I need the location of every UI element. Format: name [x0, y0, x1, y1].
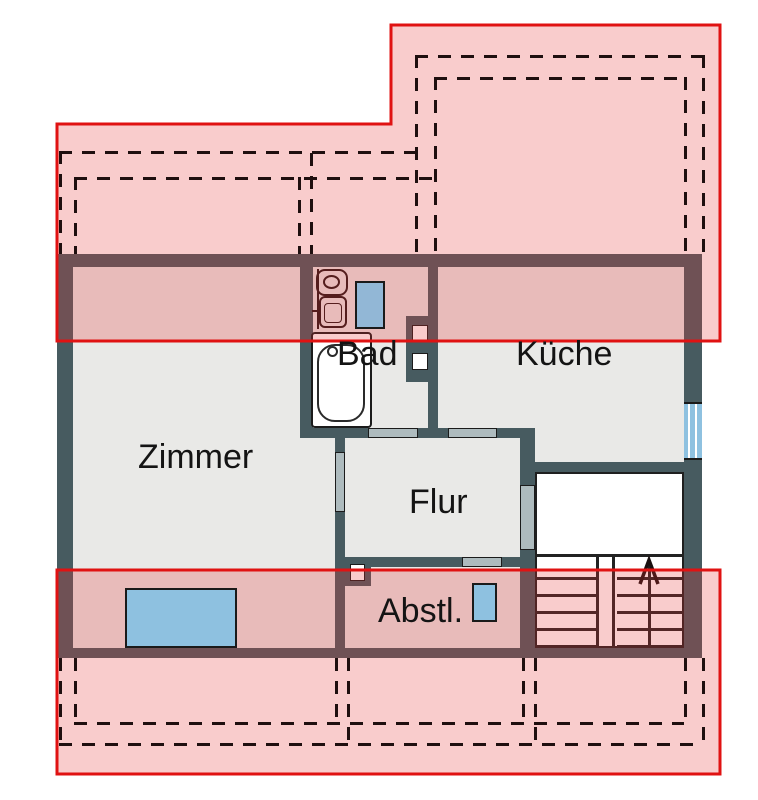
roof-dash-line	[335, 658, 338, 722]
roof-dash-line	[702, 658, 705, 743]
stairs-top-edge	[535, 554, 684, 557]
wall-stairwell-top	[535, 462, 684, 472]
roof-dash-line	[684, 77, 687, 254]
toilet-bowl	[323, 275, 340, 289]
right-wall-window	[684, 402, 702, 460]
wall-exterior-top	[57, 254, 702, 267]
roof-dash-line	[702, 55, 705, 254]
door-entry-stairwell	[520, 485, 535, 550]
roof-dash-line	[684, 658, 687, 722]
room-label-abstl: Abstl.	[378, 593, 463, 630]
wall-exterior-left	[57, 254, 73, 658]
sink-basin	[324, 303, 342, 323]
door-zimmer	[335, 452, 345, 512]
roof-dash-line	[434, 77, 437, 254]
floor-plan: Zimmer Bad Küche Flur Abstl.	[0, 0, 758, 800]
roof-dash-line	[522, 658, 525, 722]
roof-dash-line	[298, 177, 301, 254]
shaft-bad-kueche-opening-2	[412, 353, 428, 370]
roof-dash-line	[59, 151, 62, 254]
wall-exterior-bottom	[57, 648, 702, 658]
roof-dash-line	[74, 177, 434, 180]
roof-dash-line	[415, 55, 702, 58]
roof-dash-line	[59, 658, 62, 743]
roof-dash-line	[310, 153, 313, 254]
zimmer-knee-window	[125, 588, 237, 648]
roof-dash-line	[347, 658, 350, 743]
sink-tap	[312, 310, 321, 312]
roof-dash-line	[59, 743, 702, 746]
shaft-abstl-opening	[350, 564, 365, 581]
room-label-bad: Bad	[337, 336, 398, 373]
room-label-flur: Flur	[409, 484, 468, 521]
stairs-left-flight	[535, 577, 596, 648]
stairs-mid-strip-left-edge	[596, 557, 599, 648]
roof-dash-line	[74, 658, 77, 722]
roof-dash-line	[534, 658, 537, 743]
stairs-direction-line	[648, 562, 651, 648]
door-kueche	[448, 428, 497, 438]
roof-dash-line	[59, 151, 415, 154]
abstl-blue-panel	[472, 583, 497, 622]
door-abstl	[462, 557, 502, 567]
roof-dash-line	[415, 55, 418, 254]
room-label-zimmer: Zimmer	[138, 439, 253, 476]
stairs-mid-strip-right-edge	[612, 557, 615, 648]
shaft-bad-kueche-opening-1	[412, 325, 428, 341]
bad-blue-panel	[355, 281, 385, 329]
roof-dash-line	[74, 722, 684, 725]
roof-dash-line	[434, 77, 684, 80]
roof-dash-line	[74, 177, 77, 254]
room-label-kueche: Küche	[516, 336, 612, 373]
door-bad	[368, 428, 418, 438]
